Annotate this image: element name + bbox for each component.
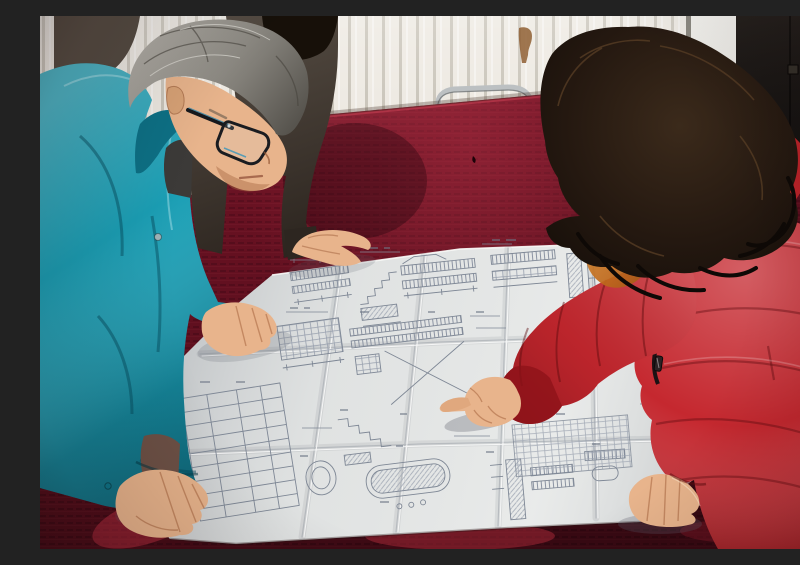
vignette — [40, 16, 800, 549]
photo-blueprint-review — [40, 16, 800, 549]
